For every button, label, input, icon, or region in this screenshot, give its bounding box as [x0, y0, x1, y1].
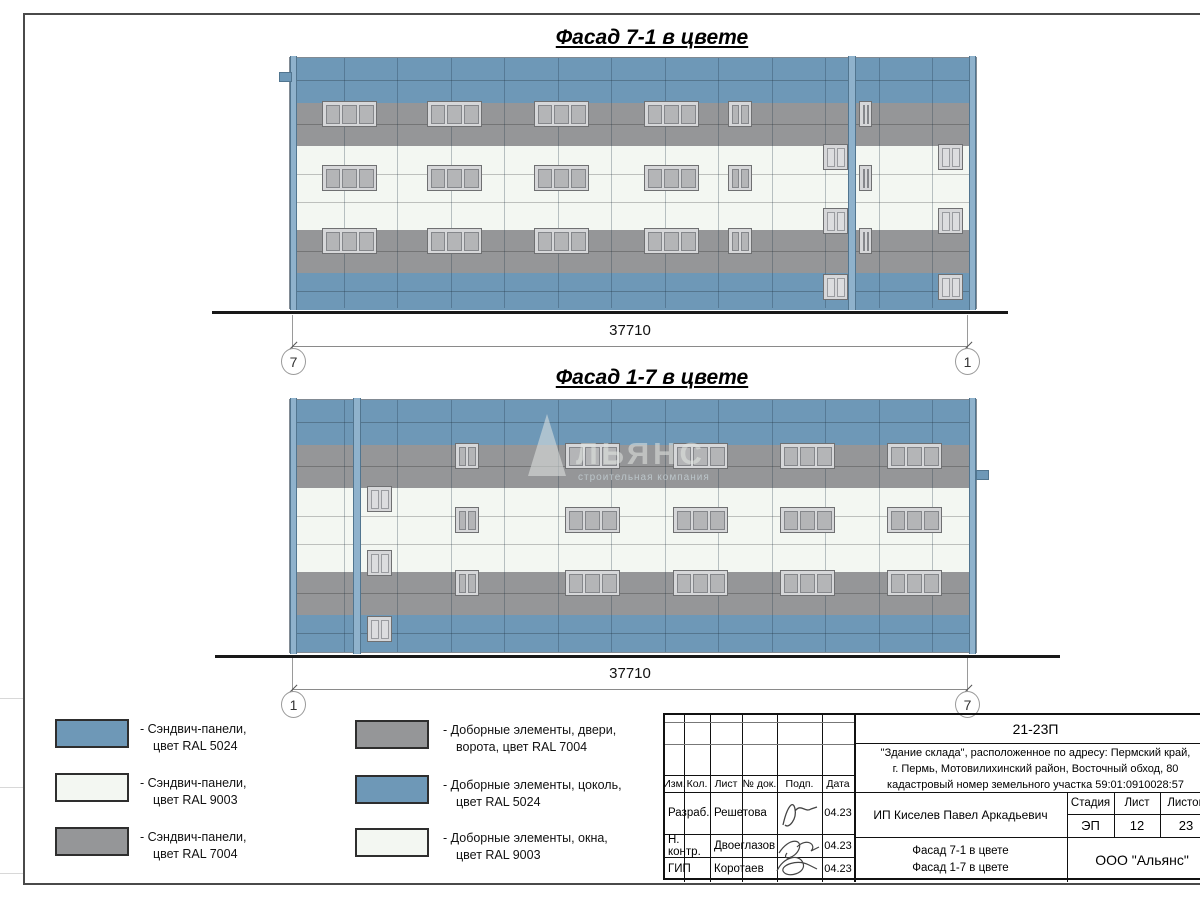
window: [534, 228, 589, 254]
window-pane: [648, 232, 663, 251]
window-pane: [677, 574, 692, 593]
window: [823, 144, 848, 170]
window: [367, 486, 392, 512]
window-pane: [459, 447, 467, 466]
window-pane: [677, 447, 692, 466]
window: [859, 101, 872, 127]
doc-number: 21-23П: [854, 715, 1200, 743]
window-pane: [381, 620, 389, 639]
window: [455, 507, 479, 533]
window: [673, 507, 728, 533]
dimension-line: [292, 689, 968, 690]
row2-role: Н. контр.: [665, 834, 710, 857]
panel-joint: [290, 251, 976, 252]
drawing-sheet: Фасад 7-1 в цвете 37710 7 1 Фасад 1-7 в …: [0, 0, 1200, 900]
axis-marker: 1: [955, 348, 980, 375]
window-pane: [863, 169, 865, 188]
col-izm: Изм.: [665, 775, 684, 792]
window-pane: [602, 574, 617, 593]
dimension-line: [292, 346, 968, 347]
window-pane: [784, 447, 799, 466]
window-pane: [693, 447, 708, 466]
panel-joint: [290, 291, 976, 292]
window-pane: [732, 232, 740, 251]
margin-divider: [0, 698, 23, 699]
window-pane: [371, 554, 379, 573]
panel-joint: [290, 593, 976, 594]
window-pane: [693, 511, 708, 530]
legend-label: - Сэндвич-панели,цвет RAL 9003: [140, 775, 246, 808]
window-pane: [381, 490, 389, 509]
window: [823, 208, 848, 234]
legend-swatch: [355, 720, 429, 749]
window-pane: [569, 447, 584, 466]
col-podp: Подп.: [777, 775, 822, 792]
window-pane: [538, 232, 553, 251]
panel-joint: [879, 58, 880, 308]
window: [455, 443, 479, 469]
row3-name: Коротаев: [711, 857, 777, 880]
window-pane: [464, 232, 479, 251]
window-pane: [741, 232, 749, 251]
window-pane: [648, 169, 663, 188]
window-pane: [342, 105, 357, 124]
window-pane: [907, 574, 922, 593]
window-pane: [447, 105, 462, 124]
sheet-value: 12: [1114, 814, 1160, 837]
window: [887, 570, 942, 596]
panel-joint: [611, 58, 612, 308]
window: [887, 507, 942, 533]
pilaster-column: [969, 56, 976, 310]
window-pane: [648, 105, 663, 124]
window: [534, 101, 589, 127]
client-name: ИП Киселев Павел Аркадьевич: [854, 792, 1067, 837]
window-pane: [664, 232, 679, 251]
window-pane: [381, 554, 389, 573]
col-list: Лист: [710, 775, 742, 792]
window: [728, 101, 752, 127]
pilaster-column: [353, 398, 361, 654]
window: [728, 165, 752, 191]
legend-label: - Сэндвич-панели,цвет RAL 5024: [140, 721, 246, 754]
window-pane: [538, 169, 553, 188]
panel-joint: [772, 400, 773, 652]
window: [322, 165, 377, 191]
row1-role: Разраб.: [665, 792, 710, 834]
panel-joint: [290, 466, 976, 467]
window-pane: [827, 148, 835, 167]
window: [644, 165, 699, 191]
window-pane: [800, 447, 815, 466]
window-pane: [942, 278, 950, 297]
title-block: Изм. Кол. Лист № док. Подп. Дата Разраб.…: [663, 713, 1200, 880]
window-pane: [359, 105, 374, 124]
window-pane: [431, 232, 446, 251]
legend-swatch: [55, 719, 129, 748]
axis-marker: 7: [281, 348, 306, 375]
panel-band-ral9003: [290, 146, 976, 230]
window: [427, 165, 482, 191]
pilaster-column: [969, 398, 976, 654]
dimension-value: 37710: [530, 665, 730, 682]
window-pane: [571, 105, 586, 124]
window-pane: [891, 511, 906, 530]
panel-joint: [451, 400, 452, 652]
panel-joint: [290, 80, 976, 81]
pilaster-column: [290, 398, 297, 654]
window-pane: [891, 447, 906, 466]
window-pane: [952, 148, 960, 167]
col-ndok: № док.: [742, 775, 777, 792]
window-pane: [907, 511, 922, 530]
window: [534, 165, 589, 191]
window-pane: [585, 511, 600, 530]
stage-value: ЭП: [1067, 814, 1114, 837]
window: [367, 616, 392, 642]
window: [644, 228, 699, 254]
panel-joint: [397, 58, 398, 308]
window-pane: [326, 169, 341, 188]
window-pane: [468, 447, 476, 466]
window-pane: [952, 278, 960, 297]
window-pane: [863, 105, 865, 124]
window-pane: [447, 169, 462, 188]
window-pane: [326, 232, 341, 251]
window-pane: [837, 278, 845, 297]
window-pane: [907, 447, 922, 466]
window: [938, 144, 963, 170]
window: [565, 570, 620, 596]
signature: [775, 795, 823, 833]
panel-joint: [825, 58, 826, 308]
window-pane: [569, 511, 584, 530]
window-pane: [924, 511, 939, 530]
window-pane: [571, 169, 586, 188]
window-pane: [677, 511, 692, 530]
project-address: "Здание склада", расположенное по адресу…: [860, 743, 1200, 792]
panel-joint: [290, 202, 976, 203]
window-pane: [459, 511, 467, 530]
window: [938, 274, 963, 300]
window-pane: [571, 232, 586, 251]
window-pane: [447, 232, 462, 251]
window-pane: [585, 574, 600, 593]
margin-divider: [0, 787, 23, 788]
sheets-value: 23: [1160, 814, 1200, 837]
window: [673, 443, 728, 469]
window-pane: [468, 574, 476, 593]
window-pane: [359, 169, 374, 188]
legend-swatch: [55, 773, 129, 802]
window-pane: [538, 105, 553, 124]
window: [322, 101, 377, 127]
sheet-title: Фасад 7-1 в цвете Фасад 1-7 в цвете: [854, 837, 1067, 882]
row1-date: 04.23: [822, 792, 854, 834]
window-pane: [924, 574, 939, 593]
window-pane: [554, 232, 569, 251]
window: [859, 228, 872, 254]
window-pane: [468, 511, 476, 530]
window-pane: [342, 232, 357, 251]
panel-joint: [290, 516, 976, 517]
row3-date: 04.23: [822, 857, 854, 880]
window-pane: [732, 105, 740, 124]
window-pane: [827, 212, 835, 231]
window: [427, 101, 482, 127]
legend-label: - Доборные элементы, цоколь,цвет RAL 502…: [443, 777, 622, 810]
panel-joint: [718, 58, 719, 308]
stage-label: Стадия: [1067, 792, 1114, 814]
panel-joint: [504, 58, 505, 308]
window-pane: [693, 574, 708, 593]
ground-line: [215, 655, 1060, 658]
flashing-tab: [279, 72, 292, 82]
titleblock-line: [665, 744, 854, 745]
window: [455, 570, 479, 596]
window-pane: [681, 169, 696, 188]
window: [322, 228, 377, 254]
window-pane: [837, 212, 845, 231]
window-pane: [827, 278, 835, 297]
legend-swatch: [55, 827, 129, 856]
window: [780, 443, 835, 469]
window-pane: [800, 511, 815, 530]
row2-name: Двоеглазов: [711, 834, 777, 857]
window-pane: [710, 511, 725, 530]
window-pane: [924, 447, 939, 466]
legend-label: - Доборные элементы, окна,цвет RAL 9003: [443, 830, 608, 863]
window-pane: [569, 574, 584, 593]
window-pane: [431, 105, 446, 124]
window-pane: [891, 574, 906, 593]
panel-joint: [344, 400, 345, 652]
window-pane: [554, 105, 569, 124]
margin-divider: [0, 873, 23, 874]
signature: [773, 835, 825, 881]
window-pane: [942, 148, 950, 167]
legend-label: - Сэндвич-панели,цвет RAL 7004: [140, 829, 246, 862]
legend-swatch: [355, 775, 429, 804]
window-pane: [681, 232, 696, 251]
window: [673, 570, 728, 596]
window: [823, 274, 848, 300]
window-pane: [741, 169, 749, 188]
ground-line: [212, 311, 1008, 314]
window-pane: [554, 169, 569, 188]
panel-joint: [665, 400, 666, 652]
window: [780, 570, 835, 596]
facade-1-7-drawing: ЛЬЯНС строительная компания: [290, 400, 976, 652]
panel-joint: [290, 174, 976, 175]
window-pane: [371, 620, 379, 639]
window-pane: [710, 447, 725, 466]
window-pane: [681, 105, 696, 124]
window-pane: [942, 212, 950, 231]
panel-band-ral9003: [290, 488, 976, 572]
window: [565, 443, 620, 469]
sheets-label: Листов: [1160, 792, 1200, 814]
window-pane: [464, 169, 479, 188]
panel-joint: [504, 400, 505, 652]
window-pane: [371, 490, 379, 509]
window-pane: [664, 169, 679, 188]
legend-swatch: [355, 828, 429, 857]
window: [367, 550, 392, 576]
window-pane: [342, 169, 357, 188]
window-pane: [817, 574, 832, 593]
facade-7-1-drawing: [290, 58, 976, 308]
panel-joint: [290, 422, 976, 423]
panel-joint: [290, 544, 976, 545]
window-pane: [863, 232, 865, 251]
window-pane: [602, 511, 617, 530]
window-pane: [732, 169, 740, 188]
window-pane: [867, 232, 869, 251]
panel-joint: [558, 400, 559, 652]
pilaster-column: [290, 56, 297, 310]
flashing-tab: [976, 470, 989, 480]
col-data: Дата: [822, 775, 854, 792]
window-pane: [817, 447, 832, 466]
window-pane: [326, 105, 341, 124]
panel-joint: [290, 633, 976, 634]
window-pane: [464, 105, 479, 124]
panel-joint: [397, 400, 398, 652]
facade1-title: Фасад 7-1 в цвете: [402, 26, 902, 50]
window-pane: [800, 574, 815, 593]
window-pane: [867, 169, 869, 188]
window-pane: [837, 148, 845, 167]
pilaster-column: [848, 56, 856, 310]
row3-role: ГИП: [665, 857, 710, 880]
window-pane: [784, 511, 799, 530]
window-pane: [741, 105, 749, 124]
window: [728, 228, 752, 254]
window: [887, 443, 942, 469]
window: [859, 165, 872, 191]
window-pane: [710, 574, 725, 593]
panel-joint: [879, 400, 880, 652]
window-pane: [359, 232, 374, 251]
window-pane: [867, 105, 869, 124]
axis-marker: 1: [281, 691, 306, 718]
facade2-title: Фасад 1-7 в цвете: [402, 366, 902, 390]
company-name: ООО "Альянс": [1067, 837, 1200, 882]
window: [938, 208, 963, 234]
window-pane: [585, 447, 600, 466]
titleblock-line: [665, 722, 854, 723]
panel-joint: [772, 58, 773, 308]
window-pane: [952, 212, 960, 231]
legend-label: - Доборные элементы, двери,ворота, цвет …: [443, 722, 616, 755]
row2-date: 04.23: [822, 834, 854, 857]
window-pane: [431, 169, 446, 188]
panel-joint: [290, 124, 976, 125]
panel-joint: [932, 58, 933, 308]
dimension-value: 37710: [530, 322, 730, 339]
window-pane: [817, 511, 832, 530]
window-pane: [784, 574, 799, 593]
window: [427, 228, 482, 254]
window-pane: [664, 105, 679, 124]
window-pane: [602, 447, 617, 466]
window: [644, 101, 699, 127]
window-pane: [459, 574, 467, 593]
sheet-label: Лист: [1114, 792, 1160, 814]
window: [565, 507, 620, 533]
window: [780, 507, 835, 533]
row1-name: Решетова: [711, 792, 777, 834]
col-kol: Кол.: [684, 775, 710, 792]
